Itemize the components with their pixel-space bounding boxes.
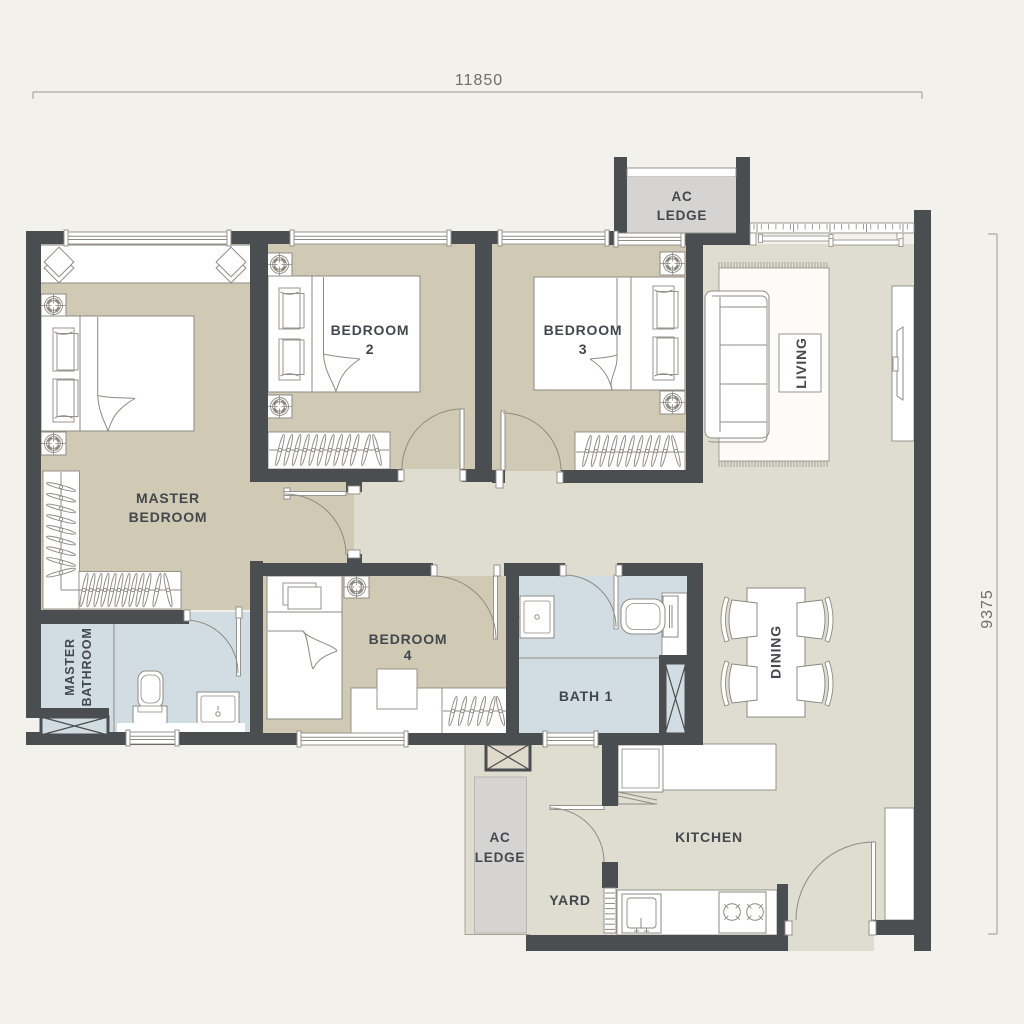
svg-text:AC: AC bbox=[671, 189, 692, 204]
svg-text:BEDROOM: BEDROOM bbox=[544, 322, 623, 338]
svg-text:BEDROOM: BEDROOM bbox=[331, 322, 410, 338]
svg-text:4: 4 bbox=[404, 647, 413, 663]
svg-text:BEDROOM: BEDROOM bbox=[369, 631, 448, 647]
svg-text:MASTER: MASTER bbox=[63, 638, 77, 696]
svg-text:BEDROOM: BEDROOM bbox=[129, 509, 208, 525]
svg-text:YARD: YARD bbox=[549, 892, 591, 908]
svg-text:LIVING: LIVING bbox=[793, 337, 809, 388]
svg-text:LEDGE: LEDGE bbox=[657, 208, 708, 223]
svg-text:KITCHEN: KITCHEN bbox=[675, 829, 743, 845]
svg-text:MASTER: MASTER bbox=[136, 490, 200, 506]
svg-text:3: 3 bbox=[579, 341, 588, 357]
svg-text:11850: 11850 bbox=[455, 72, 503, 89]
svg-text:9375: 9375 bbox=[979, 589, 996, 629]
svg-text:BATHROOM: BATHROOM bbox=[80, 627, 94, 706]
svg-text:2: 2 bbox=[366, 341, 375, 357]
svg-text:LEDGE: LEDGE bbox=[475, 850, 526, 865]
svg-text:BATH 1: BATH 1 bbox=[559, 688, 613, 704]
svg-text:AC: AC bbox=[489, 830, 510, 845]
svg-text:DINING: DINING bbox=[768, 625, 784, 679]
